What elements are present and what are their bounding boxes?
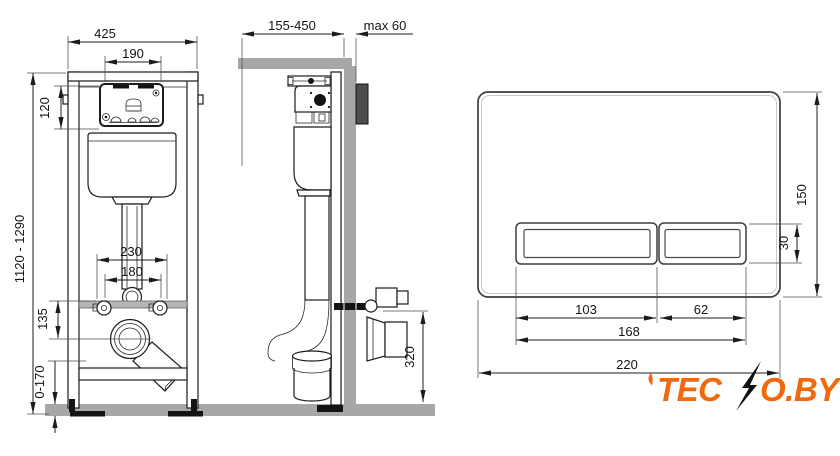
- dim-plate-width-label: 220: [616, 357, 638, 372]
- right-foot-stub: [191, 399, 197, 412]
- tecno-logo: TEC O.BY: [648, 361, 840, 411]
- front-view: 425 190 1120 - 1290 120 230 180: [12, 26, 203, 433]
- pipe-collar-side: [297, 190, 330, 196]
- side-view: 155-450 max 60 320: [238, 18, 428, 412]
- frame-rail-profile: [331, 72, 341, 405]
- right-wall-bracket: [198, 95, 203, 104]
- dim-install-height: 1120 - 1290: [12, 73, 66, 414]
- dim-plate-width: 220: [478, 300, 780, 378]
- small-flush-button: [659, 223, 746, 264]
- frame-left-rail: [68, 72, 79, 408]
- dim-outlet-height-label: 320: [402, 346, 417, 368]
- dim-depth-range-label: 155-450: [268, 18, 316, 33]
- dim-plate-height-label: 150: [794, 184, 809, 206]
- left-wall-bracket: [63, 95, 68, 104]
- dim-large-button-width-label: 103: [575, 302, 597, 317]
- dim-outlet-drop-label: 135: [35, 308, 50, 330]
- panel-screw-dot: [155, 92, 157, 94]
- dim-panel-height-label: 120: [37, 97, 52, 119]
- cistern-side-mechanism: [295, 86, 331, 123]
- dim-button-height-label: 30: [776, 236, 791, 250]
- wall-anchor-block: [356, 84, 368, 124]
- technical-drawing-page: 425 190 1120 - 1290 120 230 180: [0, 0, 840, 456]
- logo-text-suffix: O.BY: [760, 371, 840, 408]
- side-foot-plate: [317, 405, 343, 412]
- dim-opening-width-label: 190: [122, 46, 144, 61]
- dim-install-height-label: 1120 - 1290: [12, 215, 27, 283]
- dim-wall-thickness-label: max 60: [364, 18, 407, 33]
- left-foot-plate: [70, 411, 105, 417]
- dim-bolt-spacing-wide-label: 230: [120, 244, 142, 259]
- access-panel: [100, 84, 163, 126]
- waste-elbow-side: [268, 299, 332, 401]
- waste-outlet-side: [367, 317, 407, 361]
- wall-band: [344, 66, 356, 412]
- panel-tab: [138, 85, 154, 89]
- frame-right-rail: [187, 72, 198, 408]
- dim-overall-width-label: 425: [94, 26, 116, 41]
- dim-foot-adjust-label: 0-170: [32, 365, 47, 398]
- dim-buttons-width: 168: [516, 324, 745, 340]
- bolt-rail: [79, 301, 187, 308]
- left-foot-stub: [69, 399, 75, 412]
- frame-top-bar: [68, 72, 198, 81]
- flush-plate-view: 150 30 103 62 168 220: [478, 92, 822, 378]
- lightning-bolt-icon: [736, 361, 761, 411]
- barrel-collar: [293, 351, 332, 361]
- pipe-collar: [112, 197, 152, 204]
- dim-small-button-width-label: 62: [694, 302, 708, 317]
- large-flush-button: [516, 223, 657, 264]
- top-support-band: [238, 58, 352, 69]
- dim-buttons-width-label: 168: [618, 324, 640, 339]
- drawing-canvas: 425 190 1120 - 1290 120 230 180: [0, 0, 840, 456]
- logo-spark: [648, 373, 652, 386]
- logo-text-prefix: TEC: [657, 371, 723, 408]
- plate-outline: [478, 92, 780, 297]
- flush-pipe-side: [305, 196, 329, 300]
- panel-tab: [113, 85, 129, 89]
- dim-bolt-spacing-narrow-label: 180: [121, 264, 143, 279]
- dim-plate-height: 150: [783, 92, 822, 297]
- right-foot-plate: [168, 411, 203, 417]
- panel-hole-dot: [105, 116, 108, 119]
- dim-wall-thickness: max 60: [356, 18, 413, 82]
- bottom-rail: [79, 368, 187, 380]
- mounting-rail: [288, 76, 331, 86]
- cistern-side-tank: [294, 127, 331, 300]
